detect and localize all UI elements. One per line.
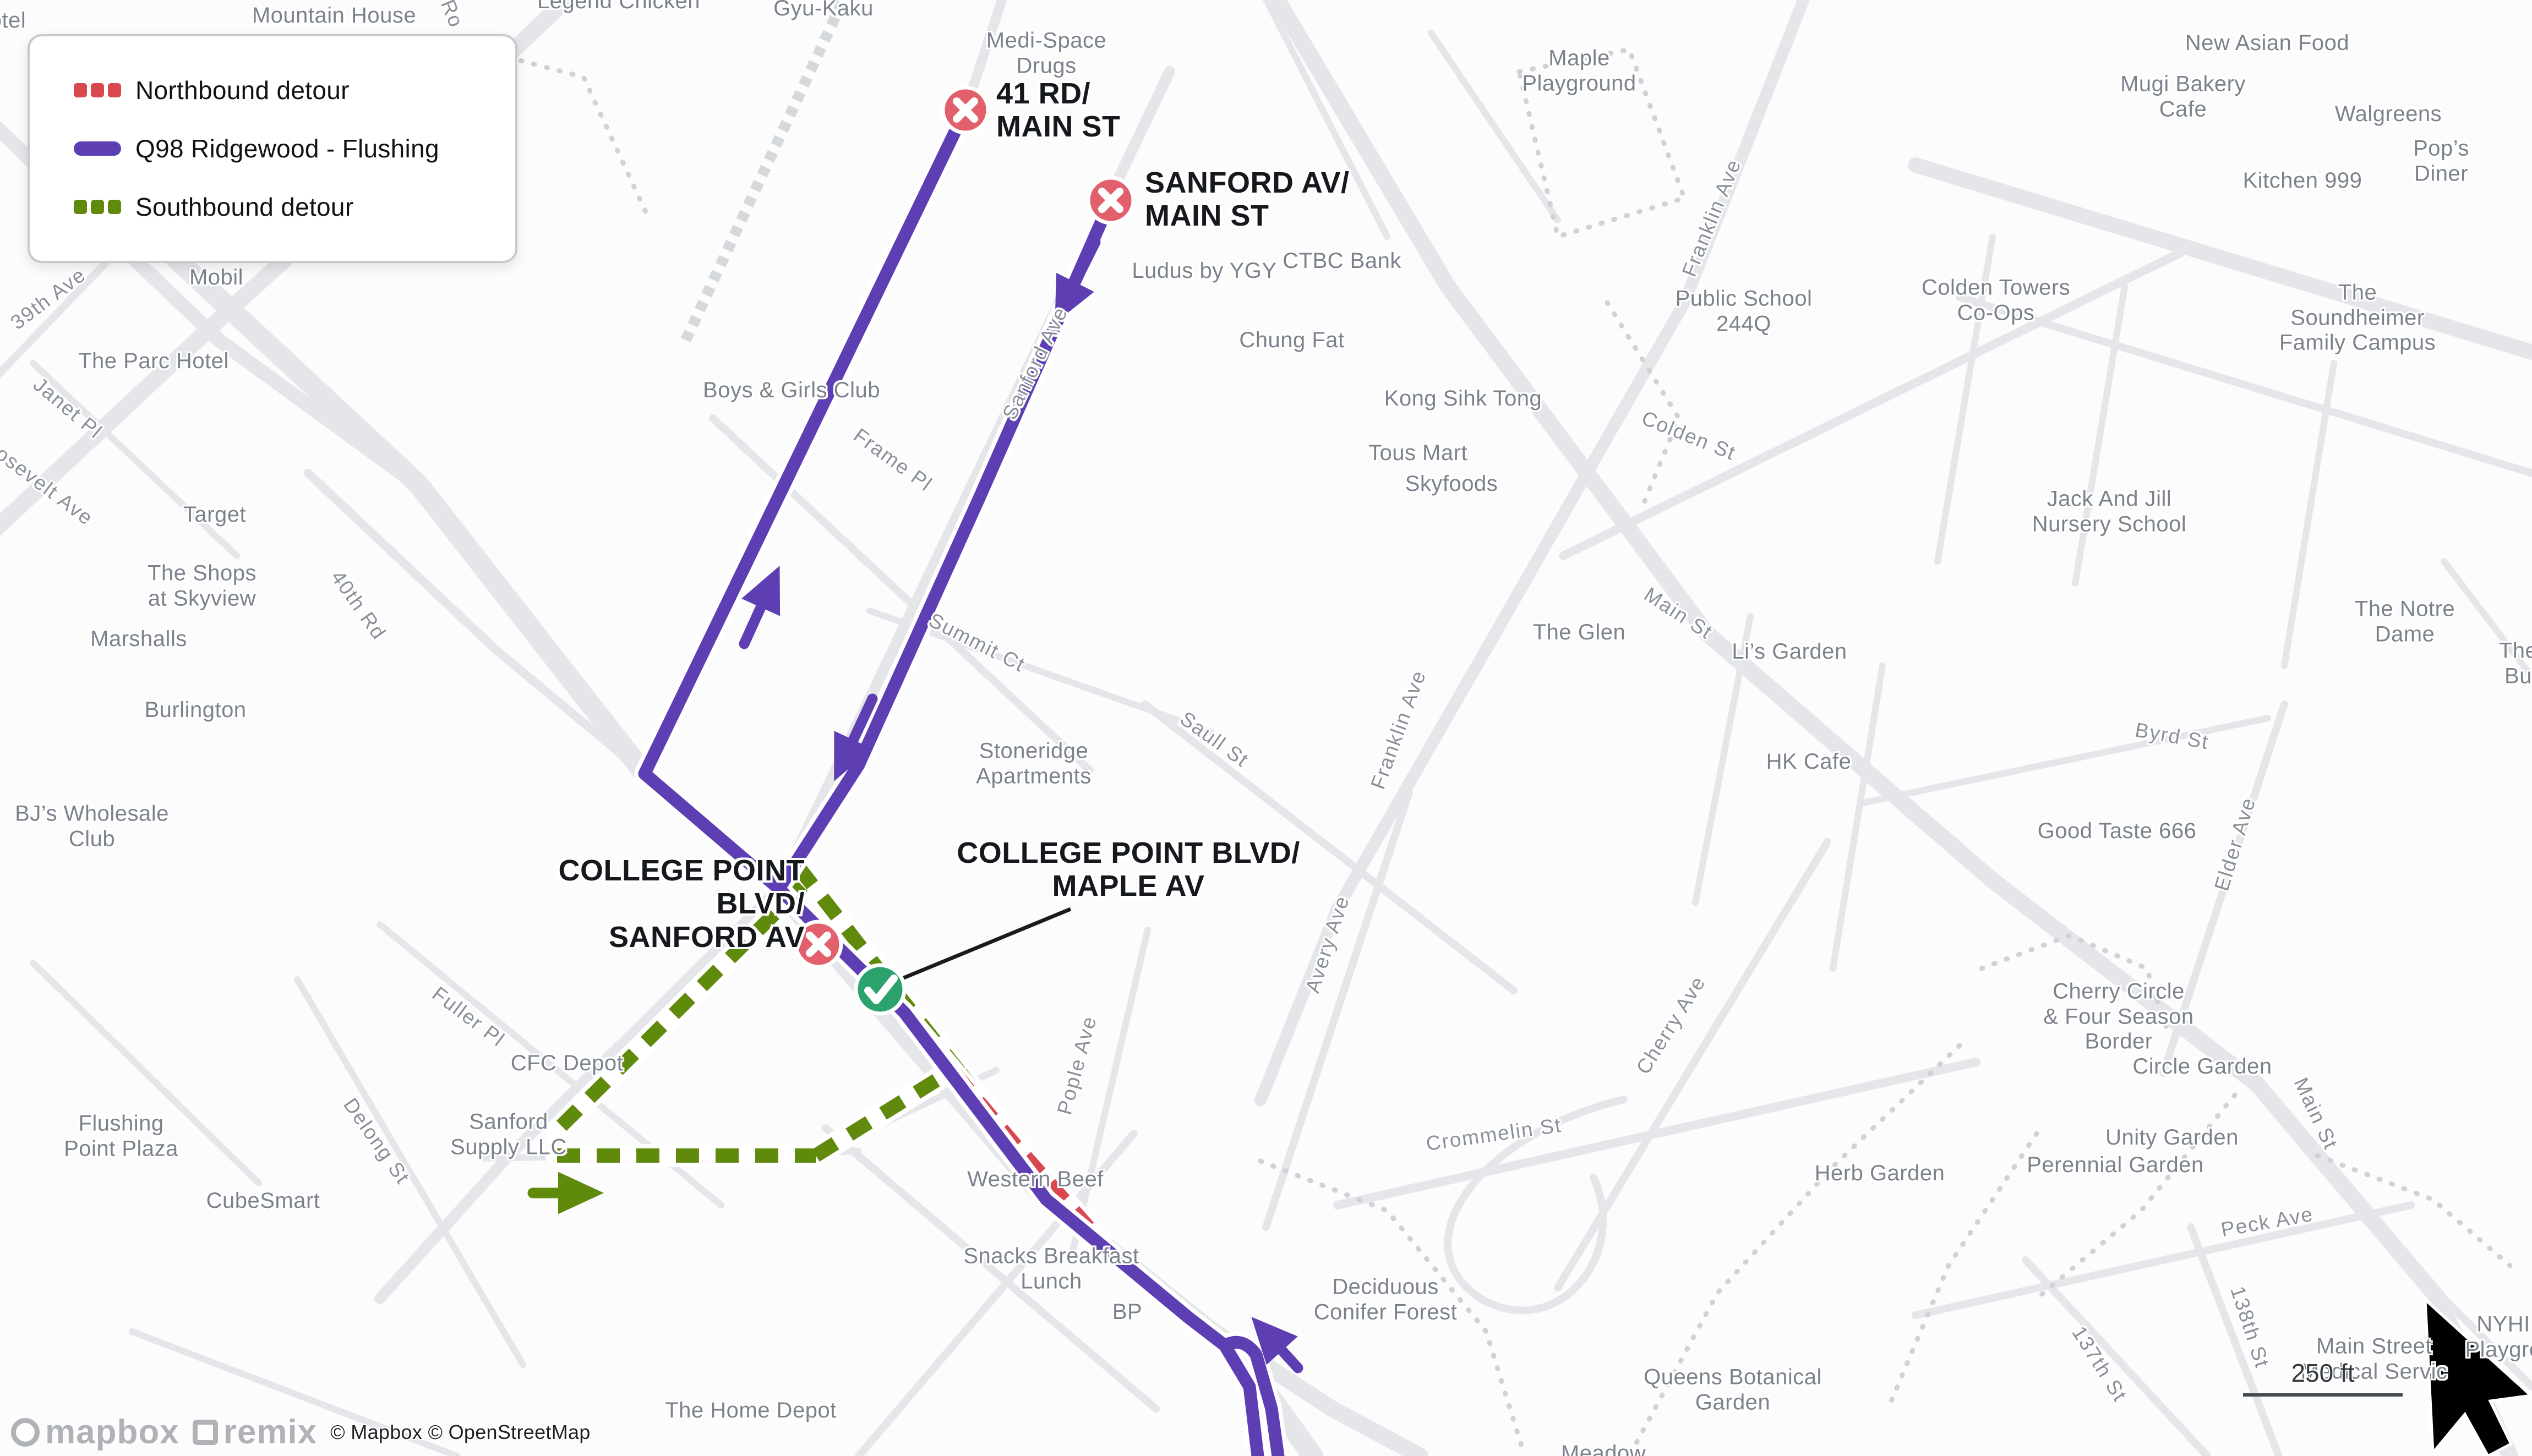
legend-label: Northbound detour [135, 75, 350, 105]
scale-bar: 250 ft [2243, 1358, 2403, 1397]
legend-label: Q98 Ridgewood - Flushing [135, 134, 439, 163]
legend-item-southbound: Southbound detour [74, 192, 515, 222]
q98-line-swatch [74, 141, 121, 156]
northbound-dash-swatch [74, 83, 121, 97]
remix-logo-text: remix [223, 1413, 317, 1452]
scale-bar-rule [2243, 1393, 2403, 1397]
attribution-bar: mapbox remix © Mapbox © OpenStreetMap [11, 1413, 591, 1452]
q98-route [645, 110, 1278, 1456]
mapbox-logo-icon [11, 1418, 40, 1447]
southbound-dash-swatch [74, 200, 121, 214]
open-stop-marker-cp-maple [856, 965, 904, 1014]
closed-stop-marker-sanford [1088, 178, 1133, 223]
map-canvas[interactable]: otel Mountain House Legend Chicken Gyu-K… [0, 0, 2532, 1456]
legend-panel: Northbound detour Q98 Ridgewood - Flushi… [28, 34, 517, 263]
legend-label: Southbound detour [135, 192, 353, 222]
remix-logo[interactable]: remix [193, 1413, 317, 1452]
mouse-cursor-icon [2425, 1300, 2531, 1456]
mapbox-logo-text: mapbox [45, 1413, 179, 1452]
remix-logo-icon [193, 1420, 218, 1445]
rail-line [685, 0, 856, 341]
mapbox-logo[interactable]: mapbox [11, 1413, 179, 1452]
copyright-links[interactable]: © Mapbox © OpenStreetMap [330, 1421, 590, 1444]
legend-item-northbound: Northbound detour [74, 75, 515, 105]
route-direction-arrows [533, 242, 1298, 1368]
callout-line [894, 909, 1071, 982]
legend-item-q98: Q98 Ridgewood - Flushing [74, 134, 515, 163]
closed-stop-marker-cp-sanford [796, 922, 841, 967]
southbound-detour-route [557, 867, 999, 1156]
scale-bar-label: 250 ft [2243, 1358, 2403, 1388]
closed-stop-marker-41rd [943, 87, 988, 133]
